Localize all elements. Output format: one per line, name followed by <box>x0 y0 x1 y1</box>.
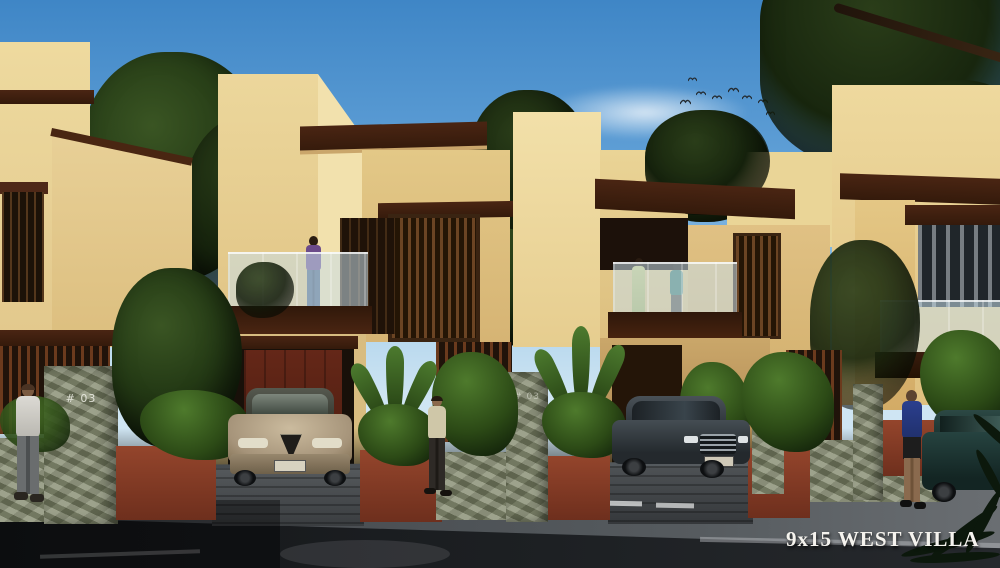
person-shorts <box>903 437 921 459</box>
palm-silhouette <box>960 420 1000 530</box>
person-legs <box>429 438 445 490</box>
gate-pillar <box>853 384 883 500</box>
road-light-patch <box>280 540 450 568</box>
pedestrian-left <box>6 384 52 526</box>
car-headlight <box>238 438 268 448</box>
villa-render-scene: # 03 # 03 <box>0 0 1000 568</box>
person-shoe <box>30 494 44 502</box>
villa2-balcony-glass <box>613 262 737 319</box>
villa-left-cornice <box>0 90 94 104</box>
villa1-garage-lintel <box>224 336 358 349</box>
car-wheel <box>622 458 646 476</box>
bird-icon <box>742 94 752 100</box>
car-champagne <box>228 386 352 488</box>
car-license-plate <box>274 460 306 472</box>
watermark-text: 9x15 WEST VILLA <box>786 527 980 552</box>
person-hair <box>21 384 35 390</box>
pergola-beam <box>0 330 116 346</box>
car-wheel <box>324 470 346 486</box>
person-shoe <box>424 488 436 494</box>
person-shoe <box>440 490 452 496</box>
car-grille <box>700 434 736 454</box>
terracotta-wall <box>548 456 610 520</box>
bird-icon <box>680 98 691 105</box>
pedestrian-right <box>892 390 932 520</box>
person-legs <box>17 436 39 494</box>
bird-icon <box>728 86 739 93</box>
palm-frond <box>973 448 1000 502</box>
car-headlight <box>312 438 342 448</box>
car-wheel <box>234 470 256 486</box>
lane-dash <box>656 503 694 509</box>
car-wheel <box>700 460 724 478</box>
person-hair <box>431 396 443 401</box>
person-torso <box>902 401 922 439</box>
villa3-window-canopy <box>905 205 1000 225</box>
car-windows <box>632 401 720 421</box>
person-legs <box>904 458 920 502</box>
villa1-slatted-window <box>388 214 480 342</box>
bird-icon <box>712 94 722 100</box>
bird-icon <box>688 76 697 82</box>
villa3-curtain-window <box>918 225 1000 307</box>
person-torso <box>428 406 446 440</box>
pedestrian-center <box>420 396 456 512</box>
car-wheel <box>932 482 956 502</box>
bird-icon <box>696 90 706 96</box>
villa-left-window <box>2 192 44 302</box>
person-shoe <box>14 492 28 500</box>
car-windshield <box>252 394 328 416</box>
car-headlight <box>738 436 748 443</box>
car-grey <box>612 396 750 480</box>
person-torso <box>16 396 40 438</box>
car-headlight <box>684 436 698 443</box>
